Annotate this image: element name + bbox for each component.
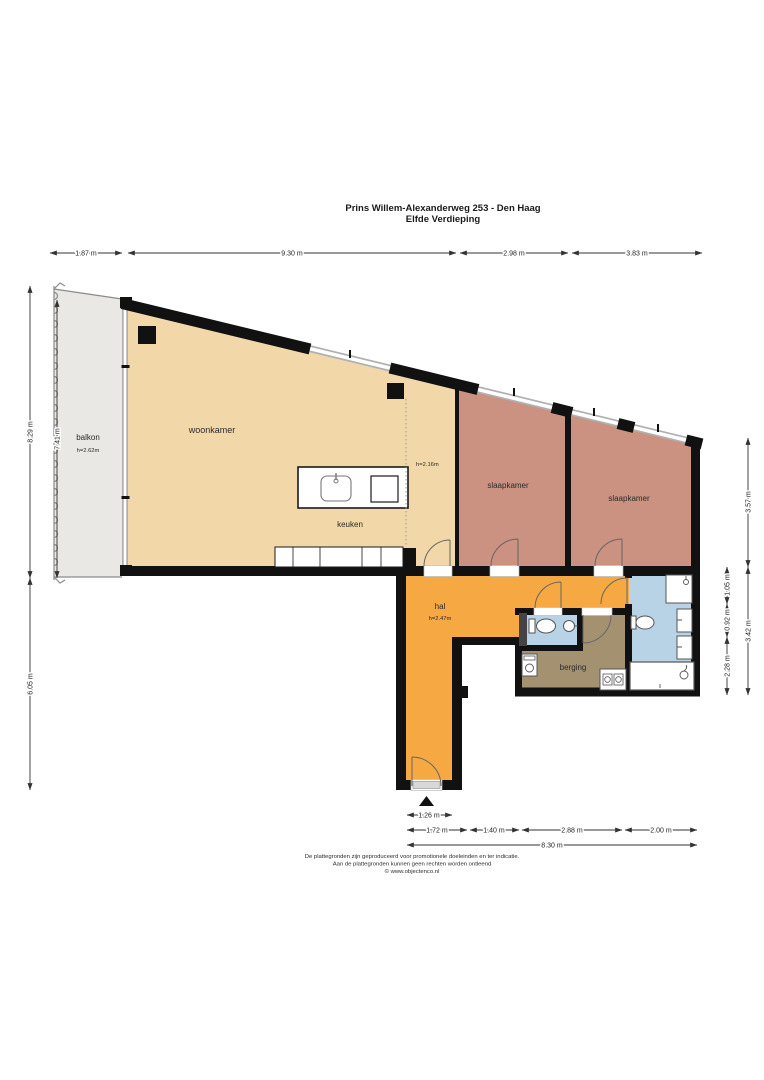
balkon-height-label: h=2.62m [77,448,100,454]
fontein-icon [564,621,575,632]
vanity-counter [666,575,692,603]
appliance-counter [600,669,626,690]
dim-top-2: 9.30 m [281,251,303,258]
window-tick-icon [122,365,130,368]
dim-bottom-4: 2.00 m [650,828,672,835]
window-tick-icon [122,496,130,499]
keuken-label: keuken [337,520,363,529]
hal-label: hal [435,602,446,611]
column [138,326,156,344]
cooktop-icon [371,476,398,502]
dim-right-outer-1: 3.57 m [746,491,753,513]
slaapkamer-links-label: slaapkamer [487,481,529,490]
dimensions-right: 3.57 m 3.42 m 1.05 m 0.92 m 2.28 m [725,438,753,695]
toilet-tank-icon [529,619,535,633]
dim-left-1: 8.29 m [28,421,35,443]
berging-door-gap [582,608,612,616]
toilet-door-gap [534,608,562,616]
dimensions-bottom: 1.26 m 1.72 m 1.40 m 2.88 m 2.00 m 8.30 … [407,813,697,850]
bathtub-icon [630,662,694,690]
footer-line-1: De plattegronden zijn geproduceerd voor … [305,854,520,860]
slaapkamer-rechts-label: slaapkamer [608,494,650,503]
toilet-tank-icon [631,616,636,629]
dim-left-3: 6.05 m [28,673,35,695]
footer: De plattegronden zijn geproduceerd voor … [305,854,520,875]
entrance-arrow-icon [419,796,434,806]
kitchen-counter [275,547,403,567]
slaapkamer-links-door-gap [490,566,519,577]
plan-subtitle: Elfde Verdieping [406,214,481,225]
woonkamer-label: woonkamer [188,425,236,435]
dim-top-1: 1.87 m [75,251,97,258]
slaapkamer-rechts-door-gap [594,566,623,577]
hal-height-label: h=2.47m [429,616,452,622]
balkon-label: balkon [76,433,100,442]
shaft [519,613,527,646]
dim-right-inner-1: 1.05 m [725,574,732,596]
floorplan-canvas: Prins Willem-Alexanderweg 253 - Den Haag… [0,0,764,1080]
dim-bottom-total: 8.30 m [541,843,563,850]
keuken-height-label: h=2.16m [416,462,439,468]
dim-top-4: 3.83 m [626,251,648,258]
dim-bottom-entrance: 1.26 m [418,813,440,820]
toilet-bowl-icon [636,616,654,629]
plan-title: Prins Willem-Alexanderweg 253 - Den Haag [345,203,540,214]
dim-bottom-3: 2.88 m [561,828,583,835]
dim-right-inner-2: 0.92 m [725,609,732,631]
column [387,383,404,399]
dim-top-3: 2.98 m [503,251,525,258]
woonkamer-door-gap [424,566,452,577]
toilet-bowl-icon [537,619,556,633]
dim-right-inner-3: 2.28 m [725,655,732,677]
berging-label: berging [560,663,587,672]
dim-right-outer-2: 3.42 m [746,620,753,642]
dim-left-2: 7.41 m [55,428,62,450]
footer-line-2: Aan de plattegronden kunnen geen rechten… [333,862,492,868]
footer-line-3: © www.objectenco.nl [385,868,440,875]
dim-bottom-1: 1.72 m [426,828,448,835]
entrance-sill [413,782,440,789]
dim-bottom-2: 1.40 m [483,828,505,835]
dimensions-top: 1.87 m 9.30 m 2.98 m 3.83 m [50,251,702,258]
